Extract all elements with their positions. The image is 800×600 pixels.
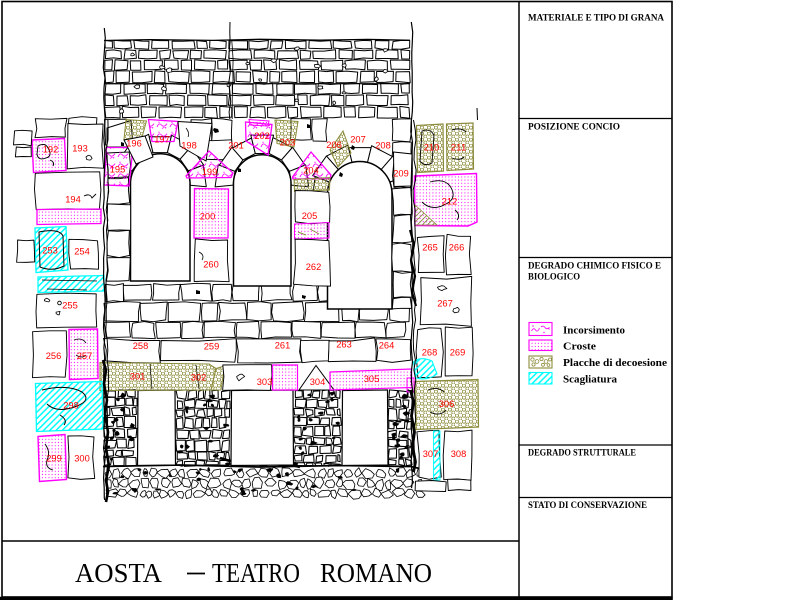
svg-text:267: 267 [437, 299, 453, 309]
svg-text:195: 195 [110, 165, 126, 175]
svg-text:POSIZIONE CONCIO: POSIZIONE CONCIO [528, 122, 620, 133]
svg-text:196: 196 [126, 139, 142, 149]
svg-text:303: 303 [257, 377, 273, 387]
svg-text:304: 304 [310, 377, 326, 387]
svg-text:209: 209 [393, 169, 409, 179]
svg-text:197: 197 [154, 135, 170, 145]
svg-text:263: 263 [336, 340, 352, 350]
svg-text:258: 258 [133, 341, 149, 351]
svg-text:260: 260 [203, 260, 219, 270]
svg-text:DEGRADO CHIMICO FISICO E: DEGRADO CHIMICO FISICO E [528, 261, 661, 272]
svg-text:ROMANO: ROMANO [320, 558, 432, 588]
svg-text:298: 298 [63, 401, 79, 411]
svg-text:204: 204 [303, 166, 319, 176]
svg-text:264: 264 [379, 341, 395, 351]
svg-text:305: 305 [364, 374, 380, 384]
svg-text:262: 262 [306, 262, 322, 272]
svg-text:AOSTA: AOSTA [75, 558, 162, 588]
svg-text:261: 261 [275, 341, 291, 351]
svg-text:253: 253 [42, 246, 58, 256]
svg-text:308: 308 [451, 449, 467, 459]
svg-text:254: 254 [74, 247, 90, 257]
svg-text:302: 302 [191, 373, 207, 383]
svg-text:257: 257 [77, 351, 93, 361]
svg-text:Placche di decoesione: Placche di decoesione [563, 358, 668, 369]
svg-text:269: 269 [450, 348, 466, 358]
svg-text:307: 307 [423, 449, 439, 459]
svg-text:206: 206 [326, 140, 342, 150]
svg-text:208: 208 [375, 141, 391, 151]
svg-text:306: 306 [439, 399, 455, 409]
svg-text:255: 255 [62, 301, 78, 311]
svg-text:210: 210 [424, 143, 440, 153]
svg-text:201: 201 [228, 141, 244, 151]
svg-text:212: 212 [442, 197, 458, 207]
svg-text:266: 266 [449, 243, 465, 253]
svg-text:DEGRADO STRUTTURALE: DEGRADO STRUTTURALE [528, 448, 636, 459]
svg-text:MATERIALE E TIPO DI GRANA: MATERIALE E TIPO DI GRANA [528, 13, 664, 24]
svg-text:Incorsimento: Incorsimento [563, 326, 625, 337]
svg-text:202: 202 [254, 131, 270, 141]
svg-text:Croste: Croste [563, 342, 597, 353]
svg-text:BIOLOGICO: BIOLOGICO [528, 272, 580, 283]
svg-text:207: 207 [350, 135, 366, 145]
svg-text:194: 194 [65, 195, 81, 205]
svg-text:193: 193 [72, 144, 88, 154]
svg-text:301: 301 [130, 372, 146, 382]
svg-text:203: 203 [280, 138, 296, 148]
svg-text:256: 256 [46, 351, 62, 361]
svg-text:STATO DI CONSERVAZIONE: STATO DI CONSERVAZIONE [528, 500, 647, 511]
svg-text:192: 192 [43, 145, 59, 155]
svg-text:199: 199 [202, 167, 218, 177]
svg-text:299: 299 [46, 454, 62, 464]
svg-text:198: 198 [181, 141, 197, 151]
svg-text:Scagliatura: Scagliatura [563, 375, 617, 386]
svg-text:205: 205 [302, 211, 318, 221]
svg-text:211: 211 [451, 143, 467, 153]
svg-text:300: 300 [74, 454, 90, 464]
svg-text:268: 268 [422, 348, 438, 358]
svg-text:265: 265 [422, 243, 438, 253]
svg-text:259: 259 [204, 342, 220, 352]
svg-text:TEATRO: TEATRO [212, 558, 300, 588]
svg-text:200: 200 [200, 212, 216, 222]
